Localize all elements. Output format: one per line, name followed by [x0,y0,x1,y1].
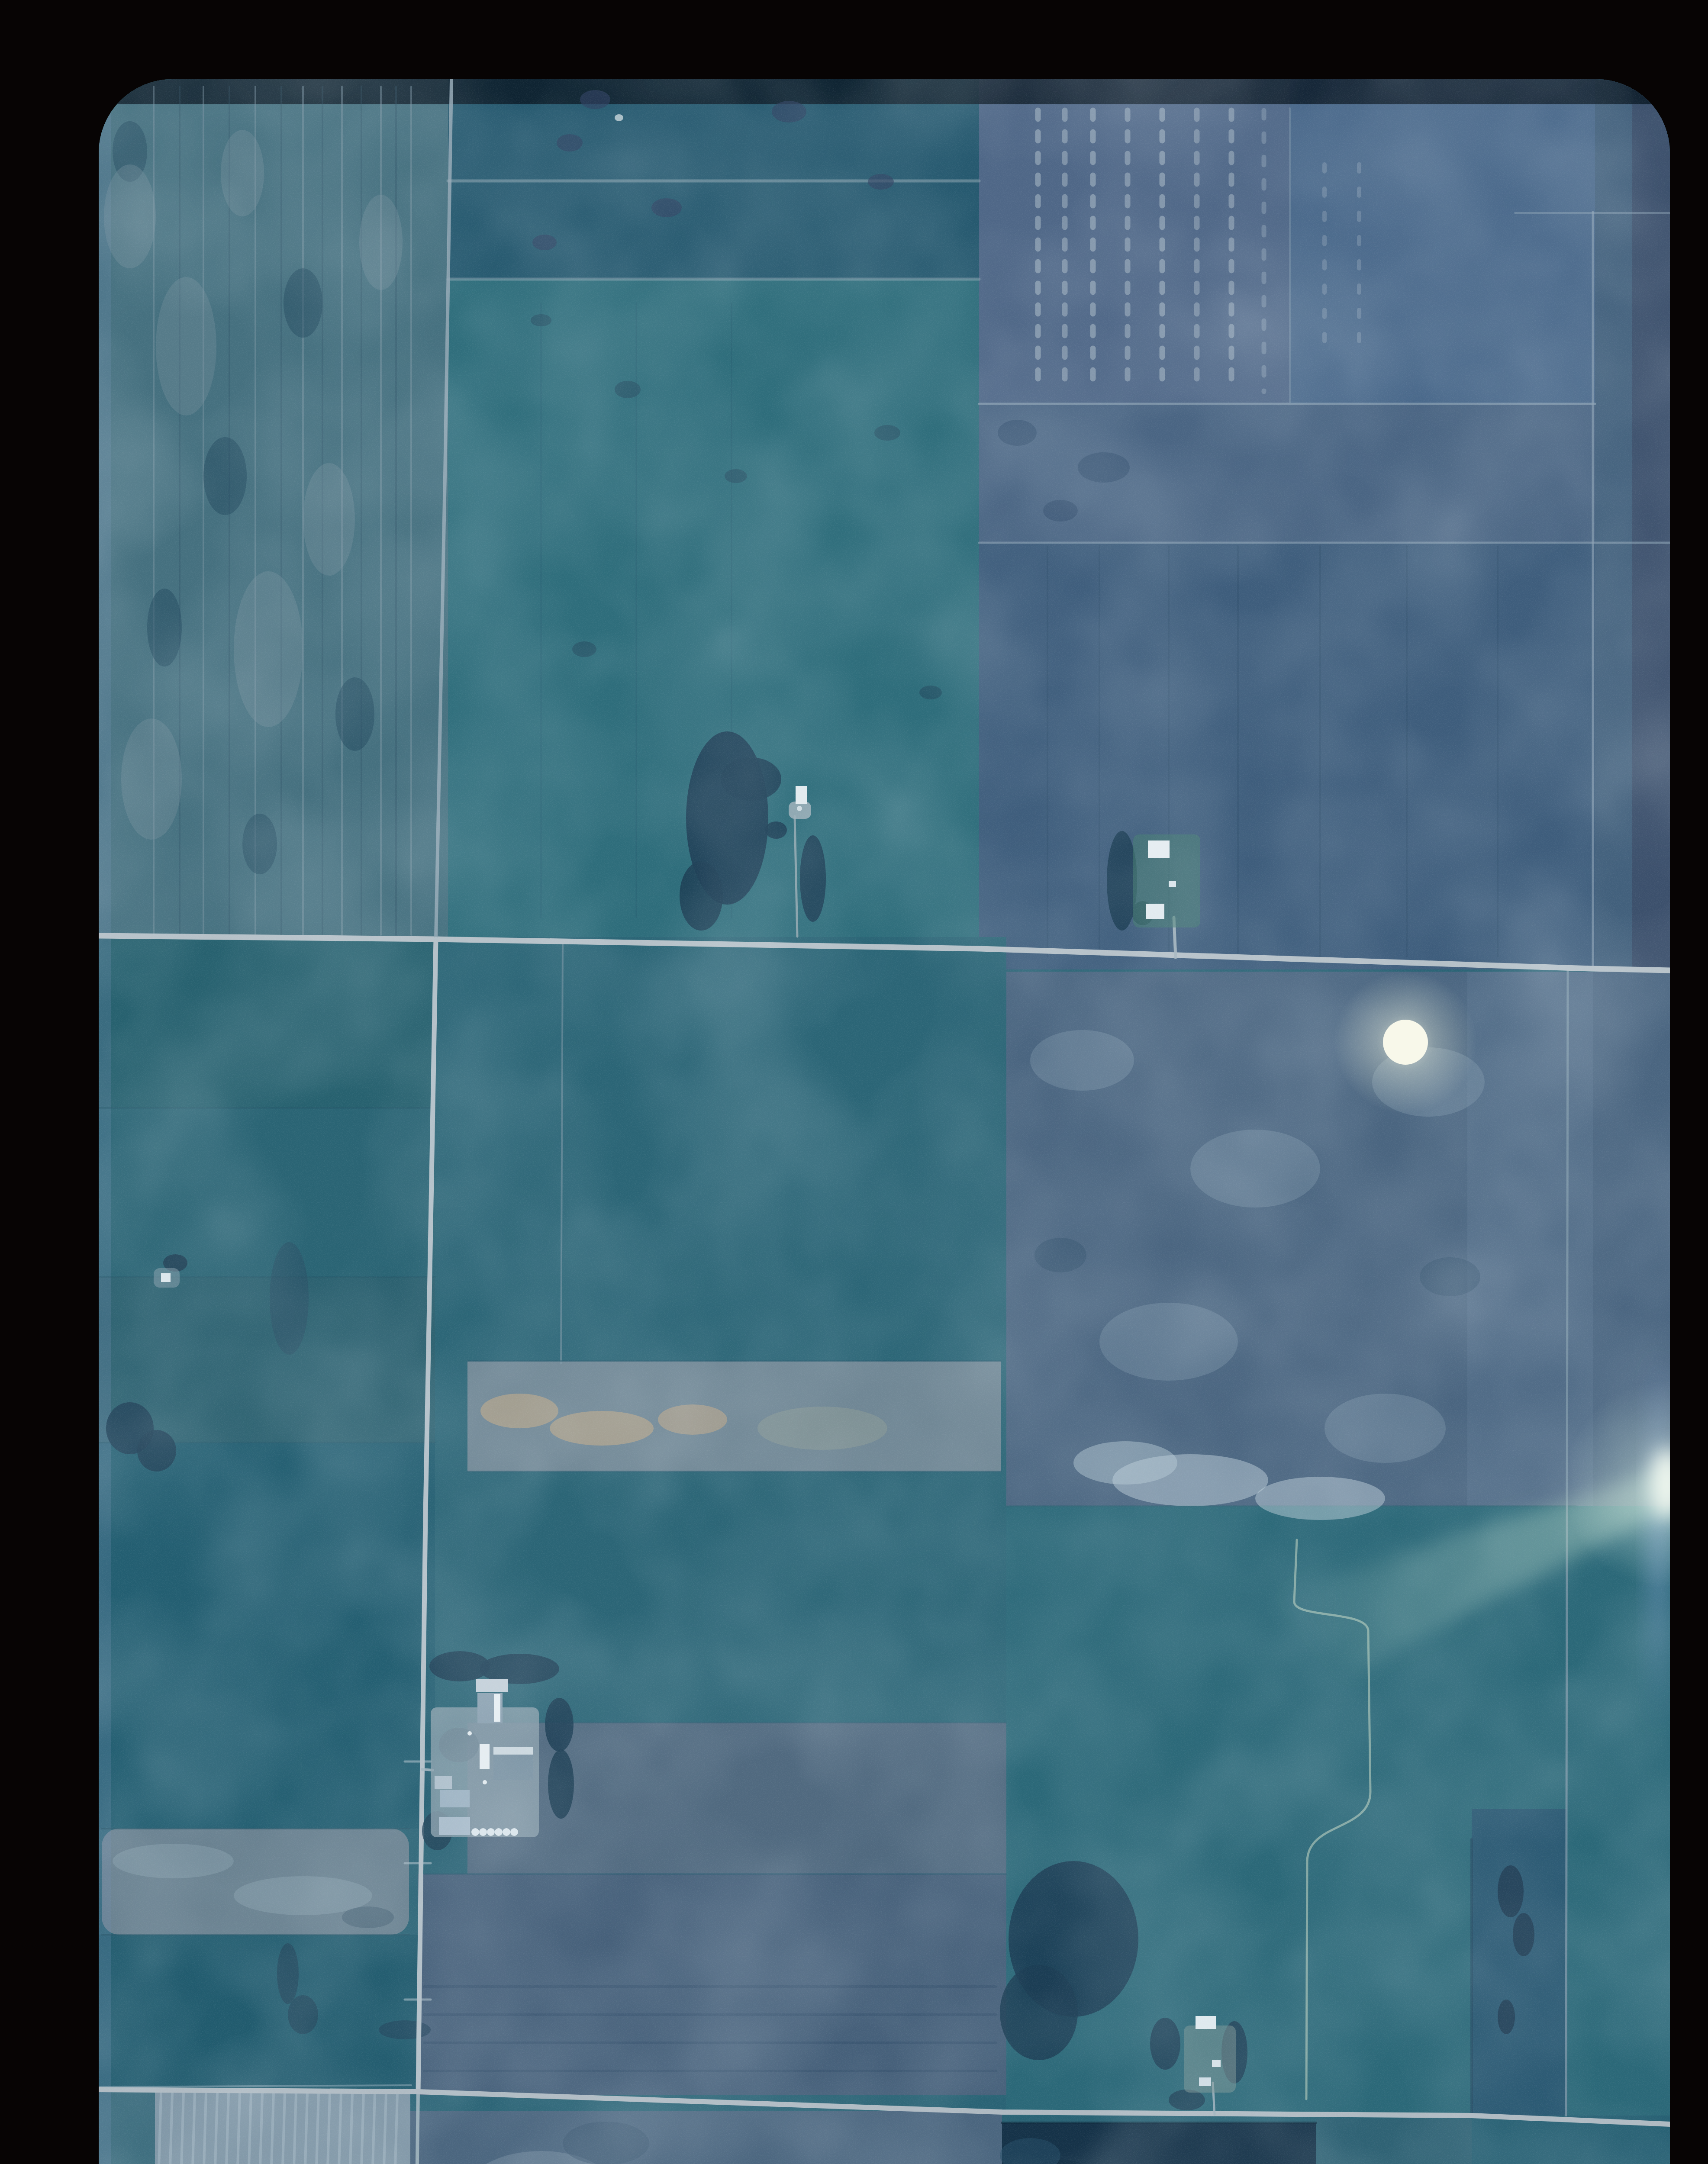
film-grain [99,79,1670,2164]
aerial-photo-slide [0,0,1708,2164]
photo-content [99,79,1708,2164]
slide-viewer [0,0,1708,2164]
sun-glint [1383,1020,1428,1065]
